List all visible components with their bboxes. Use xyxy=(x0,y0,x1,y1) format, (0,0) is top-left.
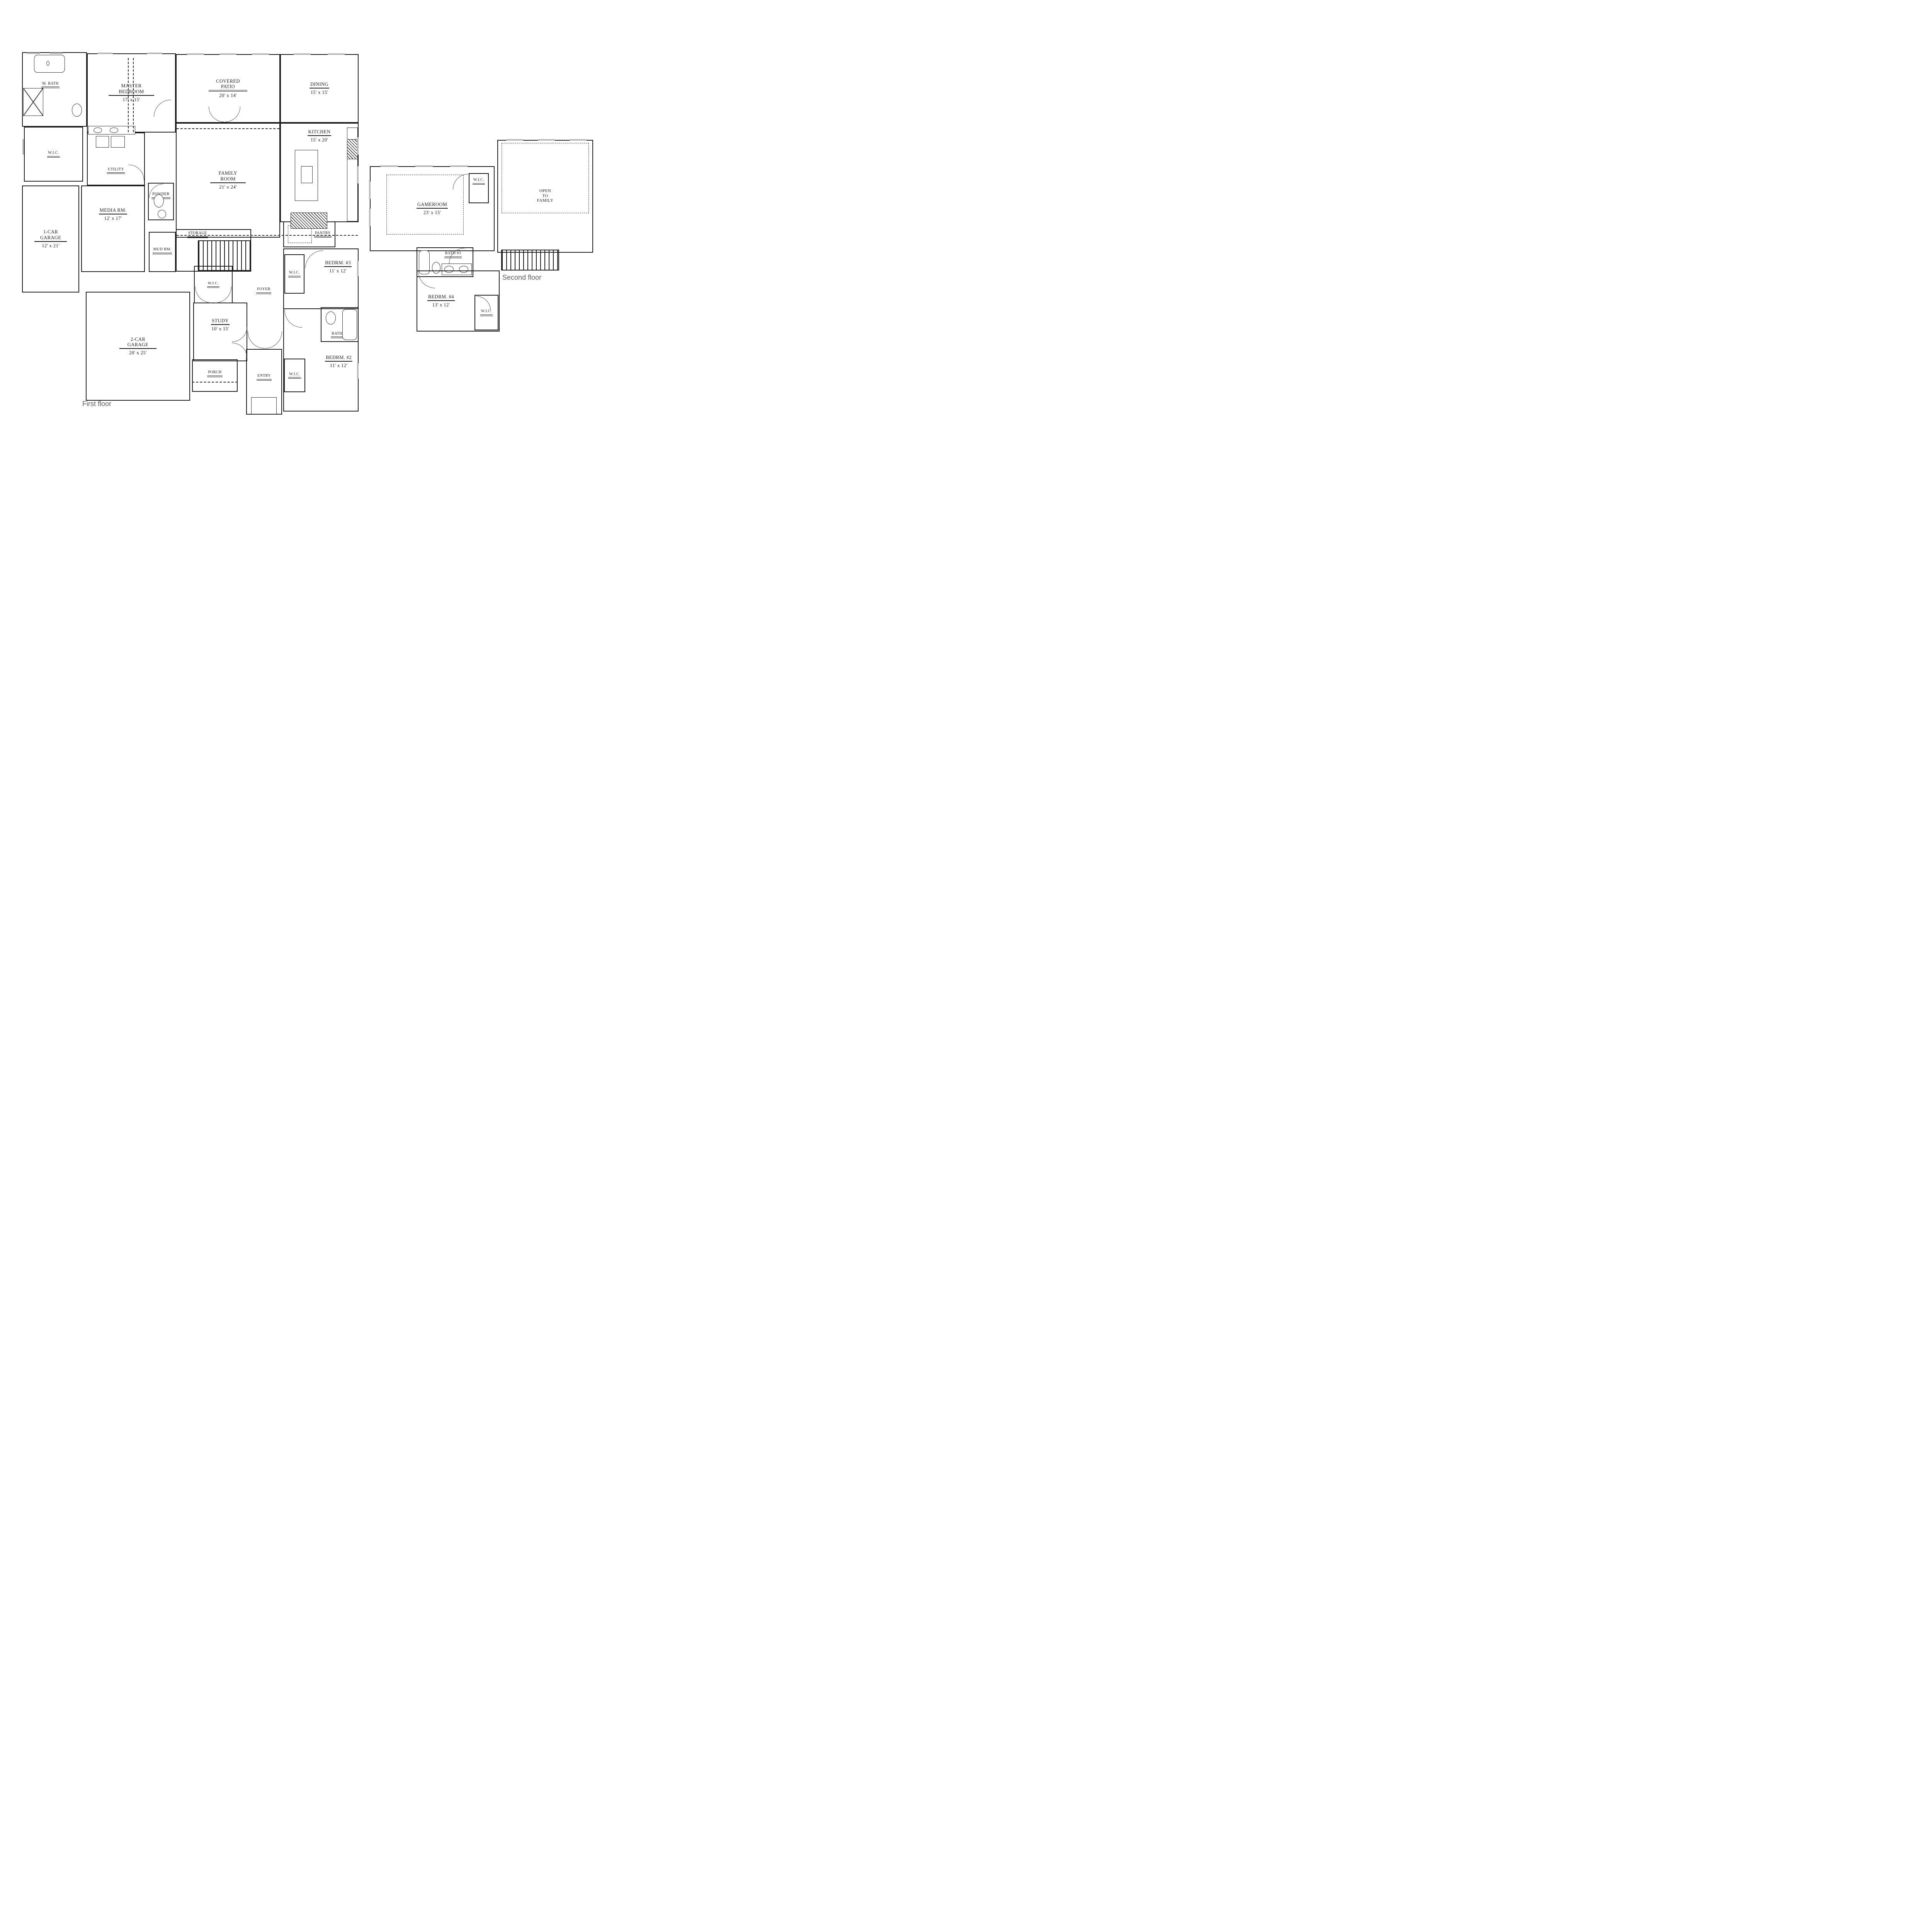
entry-stoop xyxy=(251,397,277,414)
kitchen-appliance-hatch xyxy=(347,139,358,159)
room-bedroom2-dim: 11' x 12' xyxy=(330,363,347,369)
window xyxy=(506,139,523,141)
window xyxy=(357,137,359,155)
room-media-dim: 12' x 17' xyxy=(104,216,122,221)
ceiling-dash-family-top xyxy=(177,128,279,129)
room-utility-label: UTILITY xyxy=(107,167,125,174)
room-family-room: FAMILY ROOM 21' x 24' xyxy=(176,123,280,238)
staircase-second-floor xyxy=(501,250,559,270)
porch-edge-dash xyxy=(192,382,238,383)
window xyxy=(49,53,63,54)
window xyxy=(369,209,371,226)
bathtub-icon xyxy=(34,55,65,73)
room-entry-label: ENTRY xyxy=(257,374,272,381)
sink-icon-master-2 xyxy=(110,128,118,133)
cooktop-icon xyxy=(301,166,313,183)
room-family-room-dim: 21' x 24' xyxy=(219,184,237,190)
toilet-icon-bath2 xyxy=(326,311,336,325)
room-wic-bedroom2-label: W.I.C. xyxy=(288,372,301,379)
room-porch: PORCH xyxy=(192,359,238,392)
window xyxy=(357,261,359,276)
first-floor-caption: First floor xyxy=(82,400,111,408)
room-master-bedroom: MASTER BEDROOM 17' x 15' xyxy=(87,53,176,133)
room-two-car-garage-label: 2-CAR GARAGE xyxy=(119,337,156,349)
door-arc-entry-left xyxy=(248,332,265,349)
room-wic-gameroom: W.I.C. xyxy=(469,173,489,203)
room-one-car-garage-dim: 12' x 21' xyxy=(42,243,60,249)
room-bedroom3-dim: 11' x 12' xyxy=(329,268,347,274)
room-wic-master-label: W.I.C. xyxy=(47,151,60,158)
window xyxy=(450,165,468,167)
room-family-room-label: FAMILY ROOM xyxy=(210,170,246,183)
room-media: MEDIA RM. 12' x 17' xyxy=(81,185,145,272)
room-covered-patio-dim: 20' x 14' xyxy=(219,93,237,99)
window xyxy=(357,166,359,184)
room-master-bath-label: M. BATH xyxy=(41,82,60,88)
room-master-bedroom-dim: 17' x 15' xyxy=(122,97,140,103)
window xyxy=(570,139,587,141)
room-two-car-garage-dim: 20' x 25' xyxy=(129,350,147,356)
window xyxy=(97,53,113,54)
room-bedroom4-label: BEDRM. #4 xyxy=(427,294,455,301)
window xyxy=(22,139,24,155)
bathtub-icon-bath2 xyxy=(342,309,357,340)
room-one-car-garage-label: 1-CAR GARAGE xyxy=(34,229,67,242)
room-foyer: FOYER xyxy=(245,284,282,297)
second-floor-caption: Second floor xyxy=(502,274,541,282)
window xyxy=(415,165,433,167)
room-bedroom2-label: BEDRM. #2 xyxy=(325,355,352,362)
tub-drain-icon xyxy=(46,61,49,66)
window xyxy=(381,165,398,167)
door-arc-entry-right xyxy=(265,332,282,349)
room-study-label: STUDY xyxy=(211,318,230,325)
room-two-car-garage: 2-CAR GARAGE 20' x 25' xyxy=(86,292,190,401)
sink-icon-powder xyxy=(158,210,166,218)
room-one-car-garage: 1-CAR GARAGE 12' x 21' xyxy=(22,185,79,293)
room-dining: DINING 15' x 15' xyxy=(280,54,359,123)
room-porch-label: PORCH xyxy=(207,370,222,377)
room-wic-bedroom2: W.I.C. xyxy=(284,359,305,392)
room-bedroom3-label: BEDRM. #3 xyxy=(324,260,352,267)
floor-plan-drawing: M. BATH MASTER BEDROOM 17' x 15' COVERED… xyxy=(0,0,638,493)
window xyxy=(147,53,162,54)
sink-icon-master-1 xyxy=(94,128,102,133)
room-pantry-label: PANTRY xyxy=(314,231,332,238)
window xyxy=(328,53,345,55)
room-kitchen-label: KITCHEN xyxy=(308,129,332,136)
room-wic-gameroom-label: W.I.C. xyxy=(473,178,485,185)
shower-icon xyxy=(23,88,43,116)
window xyxy=(219,53,236,55)
window xyxy=(252,53,269,55)
open-to-family-dash xyxy=(502,143,589,213)
ceiling-dash-master-2 xyxy=(133,58,134,132)
window xyxy=(369,182,371,199)
room-study-dim: 10' x 15' xyxy=(211,326,229,332)
room-foyer-label: FOYER xyxy=(256,287,271,294)
toilet-icon-master xyxy=(72,104,82,117)
room-wic-bedroom3: W.I.C. xyxy=(284,254,304,294)
room-mud-label: MUD RM. xyxy=(153,247,172,254)
ceiling-dash-master-1 xyxy=(128,58,129,132)
room-kitchen-dim: 15' x 20' xyxy=(311,137,328,143)
fireplace-icon xyxy=(291,213,327,229)
window xyxy=(187,53,204,55)
room-dining-label: DINING xyxy=(310,82,329,88)
washer-icon xyxy=(96,136,109,148)
room-wic-bedroom3-label: W.I.C. xyxy=(288,270,301,277)
room-covered-patio-label: COVERED PATIO xyxy=(209,78,247,92)
room-mud: MUD RM. xyxy=(149,232,176,272)
room-wic-master: W.I.C. xyxy=(24,127,83,182)
room-master-bedroom-label: MASTER BEDROOM xyxy=(109,83,154,96)
dryer-icon xyxy=(111,136,125,148)
ceiling-dash-family-bottom xyxy=(177,235,358,236)
room-storage-label: STORAGE xyxy=(187,231,208,238)
window xyxy=(357,363,359,379)
window xyxy=(27,53,40,54)
window xyxy=(538,139,555,141)
gameroom-ceiling-dash xyxy=(386,175,464,235)
window xyxy=(294,53,311,55)
room-dining-dim: 15' x 15' xyxy=(311,90,328,95)
room-bedroom4-dim: 13' x 12' xyxy=(432,302,450,308)
room-media-label: MEDIA RM. xyxy=(99,207,128,214)
